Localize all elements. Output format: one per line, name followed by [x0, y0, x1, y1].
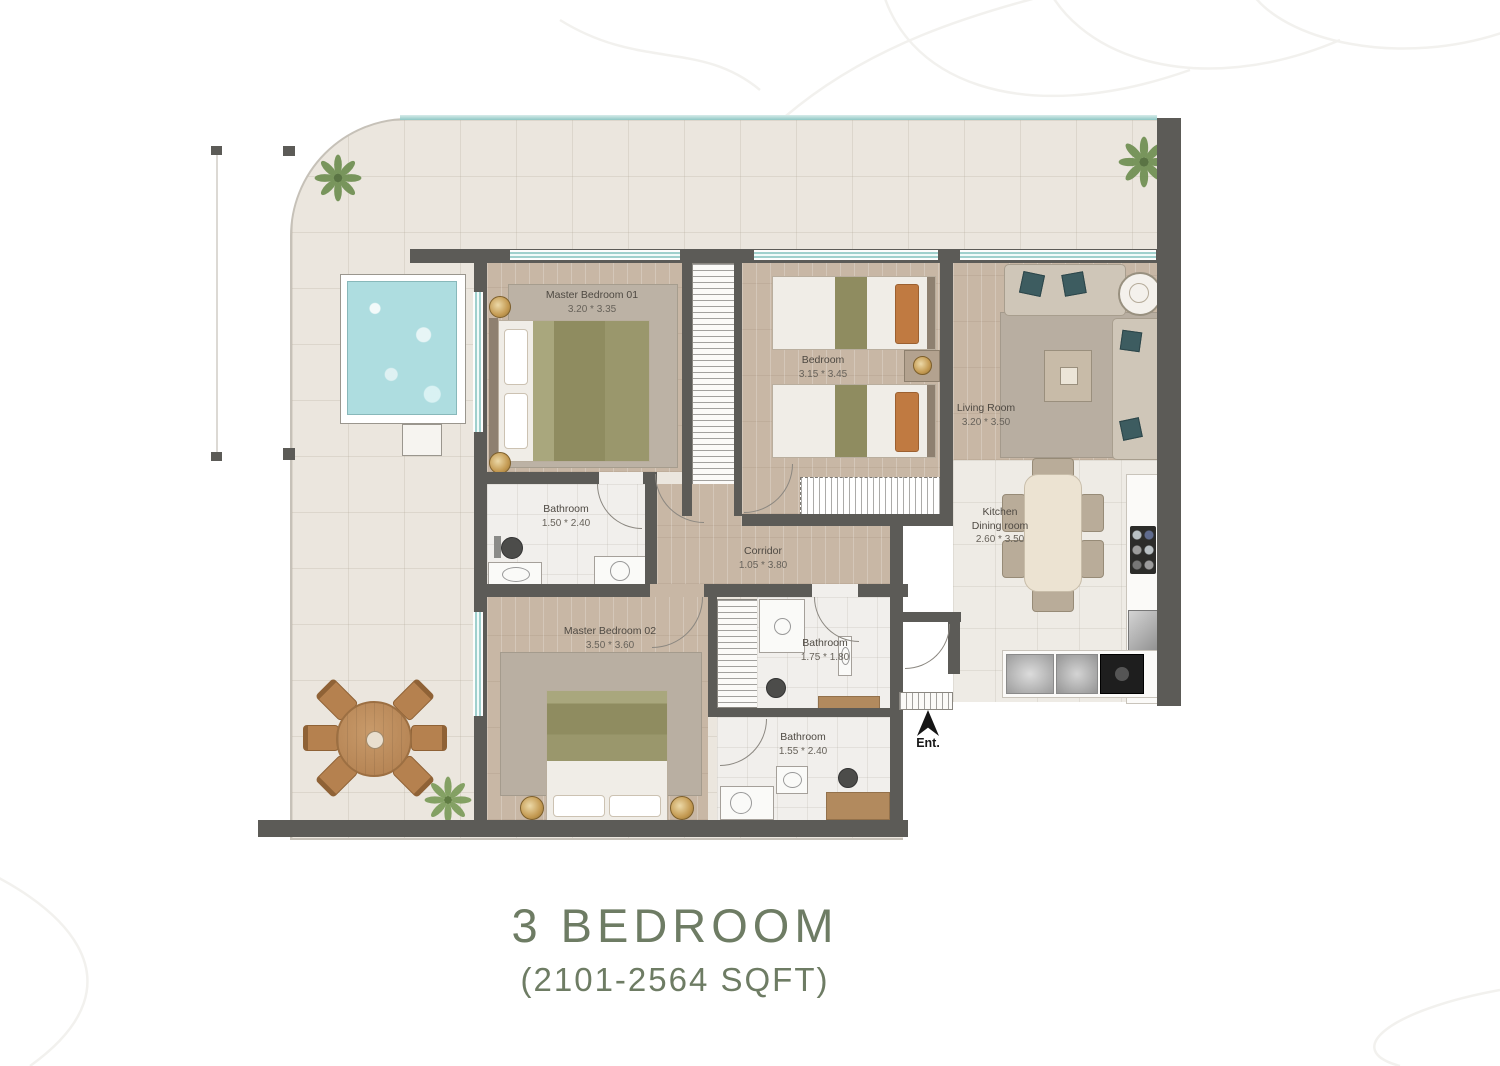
bathroom-1-label: Bathroom 1.50 * 2.40	[516, 503, 616, 530]
pillow	[895, 284, 919, 344]
bed-blanket	[533, 321, 649, 461]
shower-tray	[720, 786, 774, 820]
wall-divider	[734, 260, 742, 516]
kitchen-label: Kitchen Dining room 2.60 * 3.50	[950, 506, 1050, 546]
plot-cutout	[903, 700, 1193, 850]
bedside-lamp	[913, 356, 932, 375]
room-name: Master Bedroom 02	[530, 625, 690, 639]
shower-drain	[774, 618, 791, 635]
room-dims: 3.50 * 3.60	[530, 639, 690, 652]
sink-basin	[783, 772, 802, 788]
room-name: Bathroom	[516, 503, 616, 517]
bedside-lamp	[489, 296, 511, 318]
dining-chair	[1080, 494, 1104, 532]
wall-bottom	[258, 820, 908, 837]
room-name: Bedroom	[768, 354, 878, 368]
plan-title: 3 BEDROOM (2101-2564 SQFT)	[275, 898, 1075, 999]
entrance-label: Ent.	[908, 736, 948, 750]
table-centerpiece	[366, 731, 384, 749]
side-table	[1118, 272, 1162, 316]
wardrobe	[717, 599, 759, 708]
bed-headboard	[927, 277, 935, 349]
plant-icon	[314, 154, 362, 202]
room-name: Dining room	[950, 520, 1050, 534]
wall-divider	[940, 260, 953, 522]
toilet	[766, 678, 786, 698]
bedside-lamp	[670, 796, 694, 820]
bed-twin-2	[772, 384, 936, 458]
bed-blanket	[835, 385, 867, 457]
wall-bathroom1-right	[645, 472, 657, 596]
glass-door	[473, 292, 483, 432]
pillow	[895, 392, 919, 452]
glass-door	[473, 612, 483, 716]
shower-tray	[594, 556, 646, 586]
wall-right	[1157, 118, 1181, 706]
dining-chair	[1080, 540, 1104, 578]
room-dims: 1.55 * 2.40	[753, 745, 853, 758]
sink-basin	[1115, 667, 1129, 681]
bathroom-3-label: Bathroom 1.55 * 2.40	[753, 731, 853, 758]
living-room-label: Living Room 3.20 * 3.50	[936, 402, 1036, 429]
window	[508, 250, 682, 260]
pool-water	[347, 281, 457, 415]
page-title: 3 BEDROOM	[275, 898, 1075, 953]
room-dims: 1.05 * 3.80	[713, 559, 813, 572]
master-bedroom-01-label: Master Bedroom 01 3.20 * 3.35	[512, 289, 672, 316]
bathroom-vanity	[826, 792, 890, 820]
side-table-top	[1129, 283, 1149, 303]
bed-headboard	[927, 385, 935, 457]
pillow	[1120, 330, 1143, 353]
toilet	[838, 768, 858, 788]
wall-stub	[283, 146, 295, 156]
room-name: Kitchen	[950, 506, 1050, 520]
room-dims: 3.15 * 3.45	[768, 368, 878, 381]
toilet	[501, 537, 523, 559]
pillow	[609, 795, 661, 817]
room-name: Corridor	[713, 545, 813, 559]
entrance-threshold	[899, 692, 953, 710]
coffee-table	[1044, 350, 1092, 402]
room-dims: 3.20 * 3.35	[512, 303, 672, 316]
bathroom-vanity	[488, 562, 542, 586]
corridor-label: Corridor 1.05 * 3.80	[713, 545, 813, 572]
pillow	[1119, 417, 1143, 441]
bed-headboard	[489, 318, 498, 462]
wall-stub	[211, 146, 222, 155]
pillow	[504, 329, 528, 385]
dresser	[800, 477, 942, 515]
room-name: Master Bedroom 01	[512, 289, 672, 303]
sink-basin	[502, 567, 530, 582]
kitchen-sink	[1100, 654, 1144, 694]
shower-drain	[730, 792, 752, 814]
wall-bath-right	[890, 597, 903, 823]
window	[752, 250, 940, 260]
bedside-lamp	[489, 452, 511, 474]
balcony-glass-railing	[400, 115, 1157, 120]
outdoor-dining-table	[336, 701, 412, 777]
pool	[340, 274, 466, 424]
appliance	[1056, 654, 1098, 694]
wall-stub	[211, 452, 222, 461]
pool-step	[402, 424, 442, 456]
stove	[1130, 526, 1156, 574]
bed-blanket	[547, 691, 667, 761]
bed-master-02	[546, 690, 668, 822]
toilet-tank	[494, 536, 501, 558]
appliance	[1128, 610, 1158, 654]
bathroom-2-label: Bathroom 1.75 * 1.80	[780, 637, 870, 664]
bed-master-01	[498, 320, 650, 462]
outdoor-chair	[303, 725, 339, 751]
pillow	[504, 393, 528, 449]
bed-twin-1	[772, 276, 936, 350]
pillow	[1061, 271, 1086, 296]
pillow	[1019, 271, 1045, 297]
window	[958, 250, 1158, 260]
bedroom-label: Bedroom 3.15 * 3.45	[768, 354, 878, 381]
floor-plan-page: Ent. Master Bedroom 01 3.20 * 3.35 Bedro…	[0, 0, 1500, 1066]
door-opening	[650, 584, 704, 597]
room-dims: 2.60 * 3.50	[950, 533, 1050, 546]
table-decor	[1060, 367, 1078, 385]
plant-icon	[424, 776, 472, 824]
site-boundary-line	[216, 148, 218, 458]
room-name: Bathroom	[780, 637, 870, 651]
room-dims: 1.50 * 2.40	[516, 517, 616, 530]
door-opening	[599, 472, 643, 484]
wall-entry-top	[903, 612, 961, 622]
room-name: Living Room	[936, 402, 1036, 416]
wall-corridor-right	[890, 522, 903, 584]
wall-stub	[283, 448, 295, 460]
bed-blanket	[835, 277, 867, 349]
wall-bath-mid	[708, 708, 890, 717]
room-dims: 3.20 * 3.50	[936, 416, 1036, 429]
shower-drain	[610, 561, 630, 581]
wall-mb02-right	[708, 597, 717, 716]
pillow	[553, 795, 605, 817]
outdoor-chair	[411, 725, 447, 751]
door-opening	[812, 584, 858, 597]
wall-bedroom-bottom	[742, 514, 953, 526]
master-bedroom-02-label: Master Bedroom 02 3.50 * 3.60	[530, 625, 690, 652]
bathroom-sink	[776, 766, 808, 794]
room-dims: 1.75 * 1.80	[780, 651, 870, 664]
page-subtitle: (2101-2564 SQFT)	[275, 961, 1075, 999]
bedside-lamp	[520, 796, 544, 820]
sofa	[1004, 264, 1126, 316]
room-name: Bathroom	[753, 731, 853, 745]
appliance	[1006, 654, 1054, 694]
wall-entry-right	[948, 622, 960, 674]
